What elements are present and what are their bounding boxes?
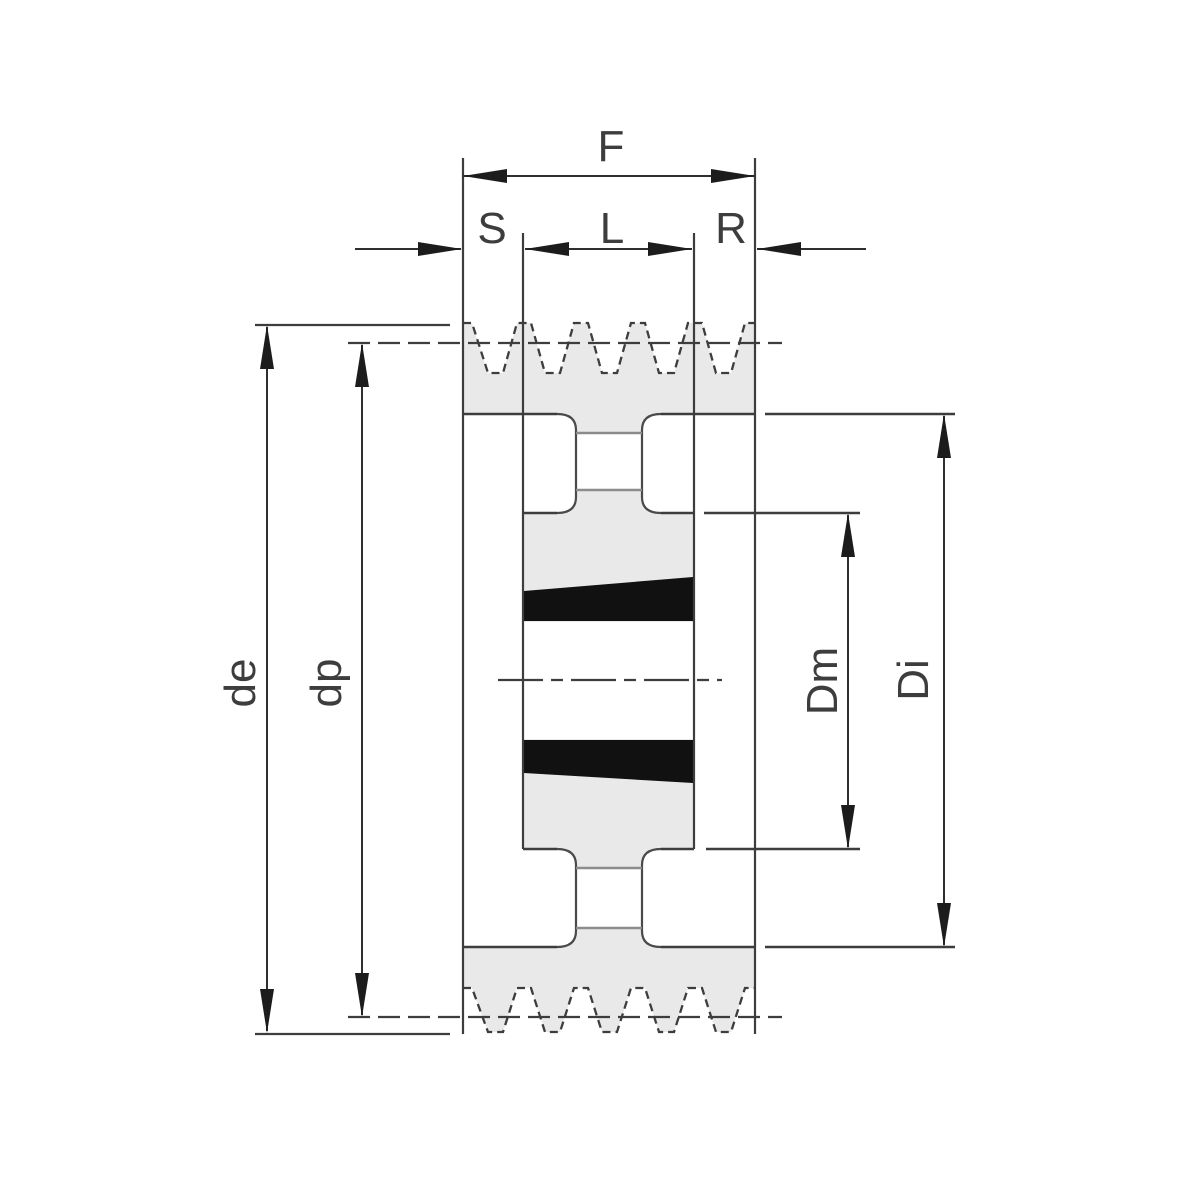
arrow-l-right	[648, 242, 692, 256]
top-web-bore-band	[577, 434, 641, 489]
label-face-width: F	[598, 122, 625, 171]
arrow-f-right	[711, 169, 755, 183]
top-rim-fill	[463, 323, 755, 414]
bottom-web-bore-band	[577, 869, 641, 927]
arrow-dm-up	[841, 513, 855, 557]
label-pitch-diameter: dp	[302, 659, 351, 708]
pulley-drawing: F S L R de dp Dm Di	[0, 0, 1200, 1200]
label-bushing-length: L	[600, 204, 624, 253]
arrow-dp-up	[355, 343, 369, 387]
top-web-right-fillet	[642, 414, 661, 513]
arrow-dp-down	[355, 973, 369, 1017]
top-web-left-fillet	[557, 414, 576, 513]
arrow-f-left	[463, 169, 507, 183]
label-offset-left: S	[477, 204, 506, 253]
arrow-di-up	[937, 414, 951, 458]
label-offset-right: R	[715, 204, 747, 253]
arrow-dm-down	[841, 805, 855, 849]
arrow-de-down	[260, 989, 274, 1033]
arrow-de-up	[260, 325, 274, 369]
label-rim-inner-diameter: Di	[889, 659, 938, 701]
technical-drawing-canvas: F S L R de dp Dm Di	[0, 0, 1200, 1200]
label-hub-diameter: Dm	[798, 647, 847, 715]
arrow-r	[757, 242, 801, 256]
bottom-web-left-fillet	[557, 849, 576, 947]
arrow-di-down	[937, 903, 951, 947]
bottom-web-right-fillet	[642, 849, 661, 947]
label-outside-diameter: de	[216, 659, 265, 708]
arrow-l-left	[525, 242, 569, 256]
arrow-s	[418, 242, 462, 256]
